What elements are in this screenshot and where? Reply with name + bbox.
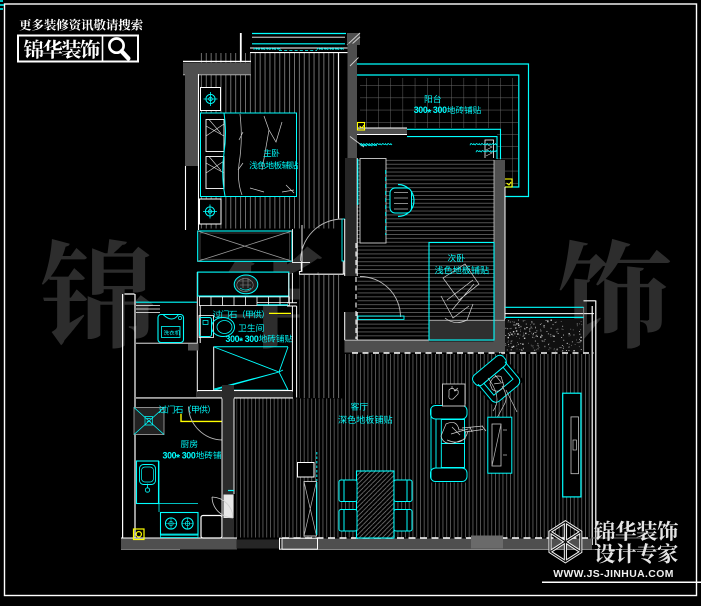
svg-text:300: 300 bbox=[433, 105, 447, 115]
svg-text:300: 300 bbox=[163, 450, 177, 460]
svg-text:300: 300 bbox=[414, 105, 428, 115]
svg-text:WWW.JS-JINHUA.COM: WWW.JS-JINHUA.COM bbox=[553, 569, 674, 580]
svg-text:300: 300 bbox=[182, 450, 196, 460]
svg-text:300: 300 bbox=[245, 334, 259, 344]
